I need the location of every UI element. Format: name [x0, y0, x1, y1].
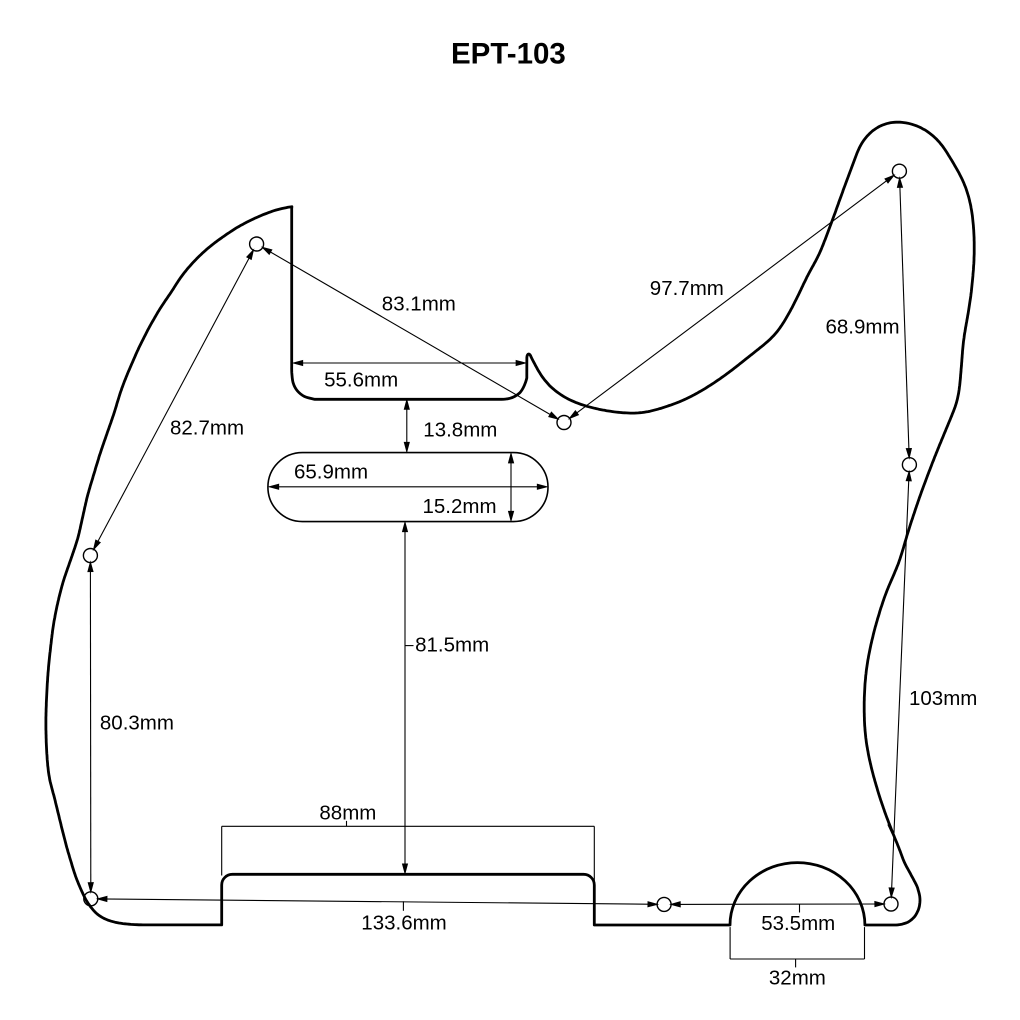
svg-text:53.5mm: 53.5mm [761, 912, 835, 935]
svg-text:80.3mm: 80.3mm [100, 712, 174, 735]
svg-text:81.5mm: 81.5mm [415, 634, 489, 657]
svg-text:32mm: 32mm [769, 967, 826, 990]
svg-text:133.6mm: 133.6mm [361, 912, 446, 935]
svg-text:103mm: 103mm [909, 687, 977, 710]
svg-text:97.7mm: 97.7mm [650, 277, 724, 300]
svg-text:EPT-103: EPT-103 [451, 38, 566, 71]
svg-text:65.9mm: 65.9mm [294, 461, 368, 484]
svg-text:13.8mm: 13.8mm [423, 419, 497, 442]
svg-text:68.9mm: 68.9mm [826, 316, 900, 339]
svg-text:15.2mm: 15.2mm [423, 495, 497, 518]
svg-text:55.6mm: 55.6mm [324, 369, 398, 392]
svg-text:82.7mm: 82.7mm [170, 417, 244, 440]
svg-text:83.1mm: 83.1mm [382, 292, 456, 315]
svg-text:88mm: 88mm [319, 801, 376, 824]
